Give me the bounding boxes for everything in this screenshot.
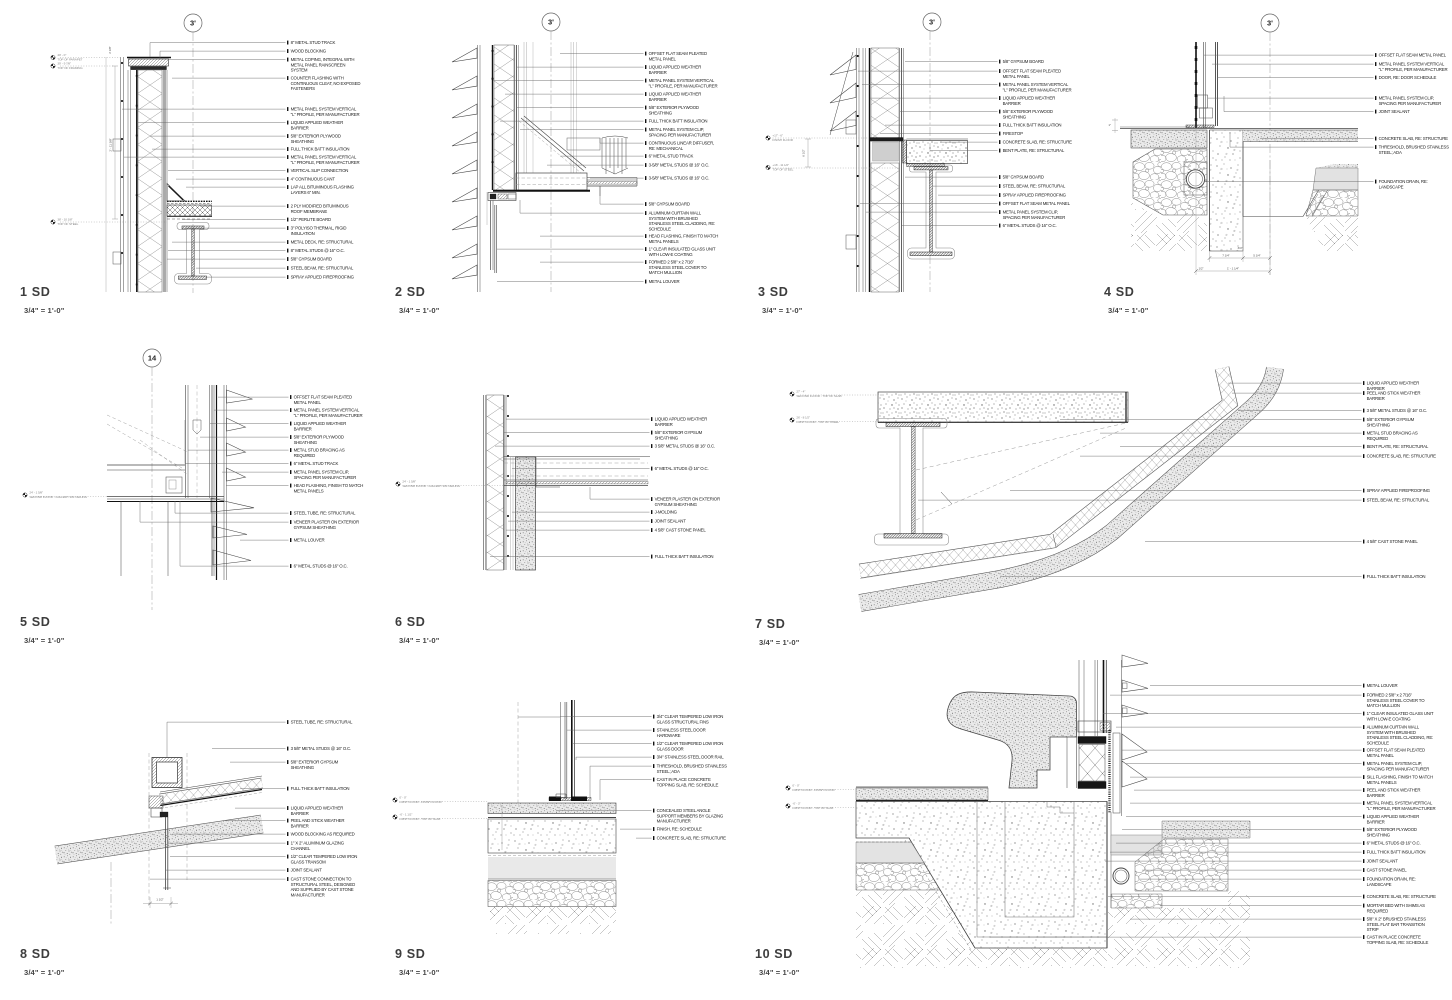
svg-text:CONCRETE SLAB, RE: STRUCTURE: CONCRETE SLAB, RE: STRUCTURE: [1379, 136, 1449, 141]
svg-text:3': 3': [1267, 19, 1273, 28]
svg-text:STEEL TUBE, RE: STRUCTURAL: STEEL TUBE, RE: STRUCTURAL: [294, 511, 356, 516]
svg-text:1 1/2": 1 1/2": [156, 898, 163, 902]
svg-text:+16' - 11 1/2": +16' - 11 1/2": [772, 163, 789, 167]
svg-text:1": 1": [1108, 123, 1111, 127]
svg-text:7 SD: 7 SD: [755, 617, 785, 631]
svg-text:3': 3': [190, 19, 196, 28]
svg-text:SPRAY APPLIED FIREPROOFING: SPRAY APPLIED FIREPROOFING: [291, 275, 355, 280]
svg-text:1 SD: 1 SD: [20, 285, 50, 299]
svg-text:-0' - 1 1/2": -0' - 1 1/2": [399, 813, 412, 817]
svg-text:CONCRETE SLAB, RE: STRUCTURE: CONCRETE SLAB, RE: STRUCTURE: [1367, 454, 1437, 459]
svg-text:JOINT SEALANT: JOINT SEALANT: [655, 519, 687, 524]
svg-text:STEEL TUBE, RE: STRUCTURAL: STEEL TUBE, RE: STRUCTURAL: [291, 720, 353, 725]
svg-text:3 5/8" METAL STUDS @ 16" O.C.: 3 5/8" METAL STUDS @ 16" O.C.: [655, 444, 715, 449]
svg-text:CONCRETE SLAB, RE: STRUCTURE: CONCRETE SLAB, RE: STRUCTURE: [657, 836, 727, 841]
svg-text:5/8" GYPSUM BOARD: 5/8" GYPSUM BOARD: [1003, 59, 1044, 64]
svg-text:STEEL BEAM, RE: STRUCTURAL: STEEL BEAM, RE: STRUCTURAL: [291, 266, 354, 271]
svg-text:-0' - 3": -0' - 3": [792, 802, 800, 806]
svg-text:24' - 1 5/8": 24' - 1 5/8": [402, 480, 416, 484]
svg-text:WOOD BLOCKING AS REQUIRED: WOOD BLOCKING AS REQUIRED: [291, 832, 355, 837]
svg-text:METAL PANEL SYSTEM CLIP,SPACIN: METAL PANEL SYSTEM CLIP,SPACING PER MANU…: [1003, 210, 1065, 220]
svg-text:5 1/4": 5 1/4": [1253, 254, 1260, 258]
svg-text:BENT PLATE, RE: STRUCTURAL: BENT PLATE, RE: STRUCTURAL: [1367, 444, 1429, 449]
svg-text:STEEL BEAM, RE: STRUCTURAL: STEEL BEAM, RE: STRUCTURAL: [1367, 498, 1430, 503]
svg-text:4 5/8" CAST STONE PANEL: 4 5/8" CAST STONE PANEL: [1367, 539, 1419, 544]
svg-text:SECOND FLOOR - GALLERY 201 CEI: SECOND FLOOR - GALLERY 201 CEILING: [402, 484, 460, 488]
svg-text:6" METAL STUD TRACK: 6" METAL STUD TRACK: [294, 461, 339, 466]
svg-text:WOOD BLOCKING: WOOD BLOCKING: [291, 49, 327, 54]
svg-text:METAL PANEL SYSTEM VERTICAL"L": METAL PANEL SYSTEM VERTICAL"L" PROFILE, …: [1367, 801, 1436, 811]
svg-text:SPRAY APPLIED FIREPROOFING: SPRAY APPLIED FIREPROOFING: [1367, 488, 1431, 493]
svg-text:CAST IN PLACE CONCRETETOPPING: CAST IN PLACE CONCRETETOPPING SLAB, RE: …: [1367, 935, 1429, 945]
svg-text:2' - 11 3/8": 2' - 11 3/8": [109, 138, 113, 151]
svg-text:3 5/8" METAL STUDS @ 16" O.C.: 3 5/8" METAL STUDS @ 16" O.C.: [291, 746, 351, 751]
svg-text:40' - 0": 40' - 0": [57, 53, 66, 57]
svg-text:METAL LOUVER: METAL LOUVER: [1367, 683, 1398, 688]
svg-text:FULL THICK BATT INSULATION: FULL THICK BATT INSULATION: [291, 147, 350, 152]
svg-text:3 SD: 3 SD: [758, 285, 788, 299]
svg-text:FULL THICK BATT INSULATION: FULL THICK BATT INSULATION: [291, 786, 350, 791]
svg-text:J-MOLDING: J-MOLDING: [655, 510, 678, 515]
svg-text:14: 14: [148, 354, 157, 363]
svg-text:7 1/4": 7 1/4": [1222, 254, 1229, 258]
svg-text:JOINT SEALANT: JOINT SEALANT: [1367, 859, 1399, 864]
svg-text:METAL PANEL SYSTEM CLIP,SPACIN: METAL PANEL SYSTEM CLIP,SPACING PER MANU…: [649, 127, 711, 137]
svg-text:27' - 4": 27' - 4": [796, 390, 805, 394]
svg-text:TOP OF FRAMING: TOP OF FRAMING: [57, 66, 83, 70]
svg-text:6 1/2": 6 1/2": [802, 149, 806, 156]
svg-text:CAST STONE PANEL: CAST STONE PANEL: [1367, 868, 1408, 873]
svg-text:FULL THICK BATT INSULATION: FULL THICK BATT INSULATION: [655, 554, 714, 559]
svg-text:3/4" = 1'-0": 3/4" = 1'-0": [24, 636, 65, 645]
svg-text:1/2" PERLITE BOARD: 1/2" PERLITE BOARD: [291, 217, 331, 222]
svg-text:OFFSET FLAT SEAM METAL PANEL: OFFSET FLAT SEAM METAL PANEL: [1379, 53, 1447, 58]
svg-text:6" METAL STUDS @ 16" O.C.: 6" METAL STUDS @ 16" O.C.: [1367, 841, 1421, 846]
svg-text:4" CONTINUOUS CANT: 4" CONTINUOUS CANT: [291, 177, 336, 182]
svg-text:3-5/8" METAL STUDS @ 16" O.C.: 3-5/8" METAL STUDS @ 16" O.C.: [649, 176, 710, 181]
svg-text:4 SD: 4 SD: [1104, 285, 1134, 299]
svg-text:9 SD: 9 SD: [395, 947, 425, 961]
svg-text:FIRST FLOOR - TOP OF STEEL: FIRST FLOOR - TOP OF STEEL: [796, 420, 839, 424]
svg-text:METAL PANEL SYSTEM VERTICAL"L": METAL PANEL SYSTEM VERTICAL"L" PROFILE, …: [291, 107, 360, 117]
svg-text:SECOND FLOOR - GALLERY 201 CEI: SECOND FLOOR - GALLERY 201 CEILING: [29, 495, 87, 499]
svg-text:8" METAL STUD TRACK: 8" METAL STUD TRACK: [291, 40, 336, 45]
svg-text:METAL PANEL SYSTEM CLIP,SPACIN: METAL PANEL SYSTEM CLIP,SPACING PER MANU…: [1379, 96, 1441, 106]
svg-text:4 5/8" CAST STONE PANEL: 4 5/8" CAST STONE PANEL: [655, 528, 707, 533]
svg-text:8 SD: 8 SD: [20, 947, 50, 961]
svg-text:26' - 8 1/2": 26' - 8 1/2": [796, 416, 810, 420]
svg-text:0' - 0": 0' - 0": [792, 784, 799, 788]
svg-text:5/8" GYPSUM BOARD: 5/8" GYPSUM BOARD: [1003, 175, 1044, 180]
svg-text:TOP OF STEEL: TOP OF STEEL: [57, 222, 78, 226]
svg-text:6 SD: 6 SD: [395, 615, 425, 629]
svg-text:METAL PANEL SYSTEM VERTICAL"L": METAL PANEL SYSTEM VERTICAL"L" PROFILE, …: [649, 78, 718, 88]
svg-text:METAL LOUVER: METAL LOUVER: [294, 538, 325, 543]
svg-text:BENT PLATE, RE: STRUCTURAL: BENT PLATE, RE: STRUCTURAL: [1003, 148, 1065, 153]
svg-text:METAL PANEL SYSTEM VERTICAL"L": METAL PANEL SYSTEM VERTICAL"L" PROFILE, …: [1379, 62, 1448, 72]
svg-text:FIRESTOP: FIRESTOP: [1003, 131, 1023, 136]
svg-text:STEEL BEAM, RE: STRUCTURAL: STEEL BEAM, RE: STRUCTURAL: [1003, 184, 1066, 189]
svg-text:6" METAL STUDS @ 16" O.C.: 6" METAL STUDS @ 16" O.C.: [294, 564, 348, 569]
svg-text:FIRST FLOOR - TOP OF SLAB: FIRST FLOOR - TOP OF SLAB: [792, 806, 833, 810]
svg-text:FULL THICK BATT INSULATION: FULL THICK BATT INSULATION: [1367, 850, 1426, 855]
svg-text:FIRST FLOOR - TOP OF SLAB: FIRST FLOOR - TOP OF SLAB: [399, 817, 440, 821]
svg-text:METAL PANEL SYSTEM VERTICAL"L": METAL PANEL SYSTEM VERTICAL"L" PROFILE, …: [294, 408, 363, 418]
svg-text:3/4" = 1'-0": 3/4" = 1'-0": [759, 638, 800, 647]
svg-text:24' - 1 5/8": 24' - 1 5/8": [29, 491, 43, 495]
svg-text:FIRST FLOOR - FINISH FLOOR: FIRST FLOOR - FINISH FLOOR: [792, 788, 835, 792]
svg-text:38' - 10 1/8": 38' - 10 1/8": [57, 218, 72, 222]
svg-text:6" METAL STUDS @ 16" O.C.: 6" METAL STUDS @ 16" O.C.: [655, 466, 709, 471]
svg-text:3/4" = 1'-0": 3/4" = 1'-0": [399, 306, 440, 315]
svg-text:VERTICAL SLIP CONNECTION: VERTICAL SLIP CONNECTION: [291, 168, 349, 173]
svg-text:SPRAY APPLIED FIREPROOFING: SPRAY APPLIED FIREPROOFING: [1003, 193, 1067, 198]
svg-text:3/4" = 1'-0": 3/4" = 1'-0": [399, 636, 440, 645]
svg-text:3/4" = 1'-0": 3/4" = 1'-0": [24, 306, 65, 315]
svg-text:SECOND FLOOR - TOP OF SLAB: SECOND FLOOR - TOP OF SLAB: [796, 394, 841, 398]
svg-text:FIRST FLOOR - FINISH FLOOR: FIRST FLOOR - FINISH FLOOR: [399, 800, 442, 804]
svg-text:CAST IN PLACE CONCRETETOPPING: CAST IN PLACE CONCRETETOPPING SLAB, RE: …: [657, 777, 719, 787]
svg-text:+17' - 6": +17' - 6": [772, 134, 783, 138]
svg-text:0' - 0": 0' - 0": [399, 796, 406, 800]
svg-text:2 SD: 2 SD: [395, 285, 425, 299]
svg-text:METAL PANEL SYSTEM VERTICAL"L": METAL PANEL SYSTEM VERTICAL"L" PROFILE, …: [1003, 82, 1072, 92]
svg-text:3/4": 3/4": [1238, 246, 1243, 250]
svg-text:METAL PANEL SYSTEM CLIP,SPACIN: METAL PANEL SYSTEM CLIP,SPACING PER MANU…: [1367, 761, 1429, 771]
svg-text:METAL PANEL SYSTEM CLIP,SPACIN: METAL PANEL SYSTEM CLIP,SPACING PER MANU…: [294, 470, 356, 480]
svg-text:3': 3': [548, 18, 554, 27]
svg-text:JOINT SEALANT: JOINT SEALANT: [291, 868, 323, 873]
svg-text:DOOR, RE: DOOR SCHEDULE: DOOR, RE: DOOR SCHEDULE: [1379, 75, 1437, 80]
svg-text:CONCRETE SLAB, RE: STRUCTURE: CONCRETE SLAB, RE: STRUCTURE: [1367, 894, 1437, 899]
svg-text:TOP OF STEEL: TOP OF STEEL: [772, 168, 793, 172]
svg-text:FULL THICK BATT INSULATION: FULL THICK BATT INSULATION: [1367, 574, 1426, 579]
svg-text:FULL THICK BATT INSULATION: FULL THICK BATT INSULATION: [649, 119, 708, 124]
svg-text:3 5/8" METAL STUDS @ 16" O.C.: 3 5/8" METAL STUDS @ 16" O.C.: [1367, 408, 1427, 413]
svg-text:CONCRETE SLAB, RE: STRUCTURE: CONCRETE SLAB, RE: STRUCTURE: [1003, 140, 1073, 145]
svg-text:JOINT SEALANT: JOINT SEALANT: [1379, 109, 1411, 114]
svg-text:FINISH FLOOR: FINISH FLOOR: [772, 138, 793, 142]
svg-text:METAL LOUVER: METAL LOUVER: [649, 279, 680, 284]
svg-text:8" METAL STUDS @ 16" O.C.: 8" METAL STUDS @ 16" O.C.: [291, 248, 345, 253]
svg-text:METAL PANEL SYSTEM VERTICAL"L": METAL PANEL SYSTEM VERTICAL"L" PROFILE, …: [291, 155, 360, 165]
svg-text:3/4" STAINLESS STEEL DOOR RAIL: 3/4" STAINLESS STEEL DOOR RAIL: [657, 755, 725, 760]
svg-text:OFFSET FLAT SEAM METAL PANEL: OFFSET FLAT SEAM METAL PANEL: [1003, 201, 1071, 206]
svg-text:3/4" = 1'-0": 3/4" = 1'-0": [1108, 306, 1149, 315]
svg-text:3/4" = 1'-0": 3/4" = 1'-0": [759, 968, 800, 977]
svg-text:39' - 9 7/8": 39' - 9 7/8": [57, 62, 71, 66]
svg-text:3/4" = 1'-0": 3/4" = 1'-0": [762, 306, 803, 315]
svg-text:3': 3': [929, 18, 935, 27]
svg-text:6" METAL STUDS @ 16" O.C.: 6" METAL STUDS @ 16" O.C.: [1003, 223, 1057, 228]
svg-text:5 SD: 5 SD: [20, 615, 50, 629]
svg-text:1' - 1 1/4": 1' - 1 1/4": [1227, 267, 1239, 271]
svg-text:3-5/8" METAL STUDS @ 16" O.C.: 3-5/8" METAL STUDS @ 16" O.C.: [649, 163, 710, 168]
svg-text:6" METAL STUD TRACK: 6" METAL STUD TRACK: [649, 154, 694, 159]
svg-text:5/8" GYPSUM BOARD: 5/8" GYPSUM BOARD: [649, 202, 690, 207]
svg-text:3/4" = 1'-0": 3/4" = 1'-0": [24, 968, 65, 977]
svg-text:FULL THICK BATT INSULATION: FULL THICK BATT INSULATION: [1003, 123, 1062, 128]
svg-text:FINISH, RE: SCHEDULE: FINISH, RE: SCHEDULE: [657, 827, 702, 832]
svg-text:1/2": 1/2": [1199, 267, 1204, 271]
svg-text:METAL DECK, RE: STRUCTURAL: METAL DECK, RE: STRUCTURAL: [291, 240, 354, 245]
svg-text:5/8" GYPSUM BOARD: 5/8" GYPSUM BOARD: [291, 257, 332, 262]
svg-text:10 SD: 10 SD: [755, 947, 793, 961]
svg-text:3/4" = 1'-0": 3/4" = 1'-0": [399, 968, 440, 977]
svg-text:2 1/8": 2 1/8": [108, 46, 112, 53]
